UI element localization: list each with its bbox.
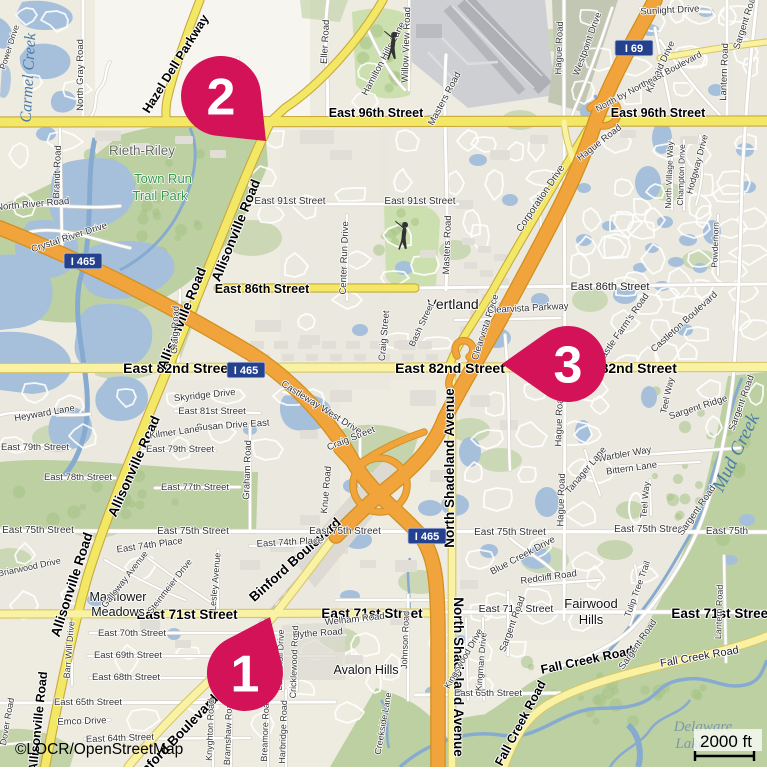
svg-text:East 86th Street: East 86th Street xyxy=(571,281,650,293)
svg-text:2: 2 xyxy=(207,69,236,127)
svg-text:East 96th Street: East 96th Street xyxy=(611,106,706,120)
svg-text:Hague Road: Hague Road xyxy=(555,473,568,527)
svg-text:I 465: I 465 xyxy=(71,256,95,268)
svg-text:East 65th Street: East 65th Street xyxy=(454,688,522,699)
svg-text:East 69th Street: East 69th Street xyxy=(94,650,162,661)
svg-text:North Gray Road: North Gray Road xyxy=(75,39,86,111)
svg-text:East 78th Street: East 78th Street xyxy=(44,472,112,483)
svg-text:East 82nd Street: East 82nd Street xyxy=(395,360,505,376)
svg-text:Johnson Road: Johnson Road xyxy=(399,611,411,669)
svg-text:Fairwood: Fairwood xyxy=(564,596,617,611)
svg-text:I 465: I 465 xyxy=(234,365,258,377)
svg-text:East 79th Street: East 79th Street xyxy=(146,444,214,455)
svg-text:North Shadeland Avenue: North Shadeland Avenue xyxy=(442,388,457,548)
svg-text:Graham Road: Graham Road xyxy=(241,440,254,500)
svg-text:Rieth-Riley: Rieth-Riley xyxy=(109,143,175,158)
svg-text:Lantern Road: Lantern Road xyxy=(713,584,725,639)
svg-text:Town Run: Town Run xyxy=(134,171,192,186)
svg-text:East 79th Street: East 79th Street xyxy=(1,442,69,453)
svg-text:Meadows: Meadows xyxy=(91,605,145,619)
svg-text:Lantern Road: Lantern Road xyxy=(718,43,731,101)
svg-text:East 65th Street: East 65th Street xyxy=(54,697,122,708)
svg-text:I 69: I 69 xyxy=(625,43,643,55)
svg-text:East 75th Street: East 75th Street xyxy=(157,526,229,537)
svg-text:East 86th Street: East 86th Street xyxy=(215,282,310,296)
svg-text:East 81st Street: East 81st Street xyxy=(178,406,246,417)
svg-text:Hague Road: Hague Road xyxy=(553,21,566,75)
svg-text:Emco Drive: Emco Drive xyxy=(57,715,106,728)
svg-text:1: 1 xyxy=(231,646,260,704)
svg-text:Craig Road: Craig Road xyxy=(169,306,182,354)
svg-text:I 465: I 465 xyxy=(415,531,439,543)
svg-text:East 70th Street: East 70th Street xyxy=(98,628,166,639)
svg-text:Avalon Hills: Avalon Hills xyxy=(333,663,398,677)
svg-text:Eller Road: Eller Road xyxy=(319,19,332,64)
svg-text:East 91st Street: East 91st Street xyxy=(384,196,455,207)
svg-text:East 82nd Street: East 82nd Street xyxy=(123,360,233,376)
svg-text:East 68th Street: East 68th Street xyxy=(92,672,160,683)
svg-text:Vertland: Vertland xyxy=(427,296,478,312)
svg-text:Brandt Road: Brandt Road xyxy=(51,145,64,199)
svg-text:East 77th Street: East 77th Street xyxy=(161,482,229,493)
svg-text:East 75th Street: East 75th Street xyxy=(474,527,546,538)
svg-text:2000 ft: 2000 ft xyxy=(700,732,752,751)
svg-text:Hills: Hills xyxy=(579,612,604,627)
svg-text:Trail Park: Trail Park xyxy=(132,188,188,203)
svg-text:East 75th Street: East 75th Street xyxy=(2,525,74,536)
svg-text:East 96th Street: East 96th Street xyxy=(329,106,424,120)
svg-text:Masters Road: Masters Road xyxy=(441,215,454,274)
svg-text:©LOCR/OpenStreetMap: ©LOCR/OpenStreetMap xyxy=(15,741,183,758)
svg-text:East 75th Street: East 75th Street xyxy=(614,524,686,535)
svg-text:East 75th: East 75th xyxy=(706,526,748,537)
svg-text:3: 3 xyxy=(554,337,583,395)
svg-text:Powderhorn: Powderhorn xyxy=(709,222,721,268)
svg-text:East 91st Street: East 91st Street xyxy=(254,196,325,207)
